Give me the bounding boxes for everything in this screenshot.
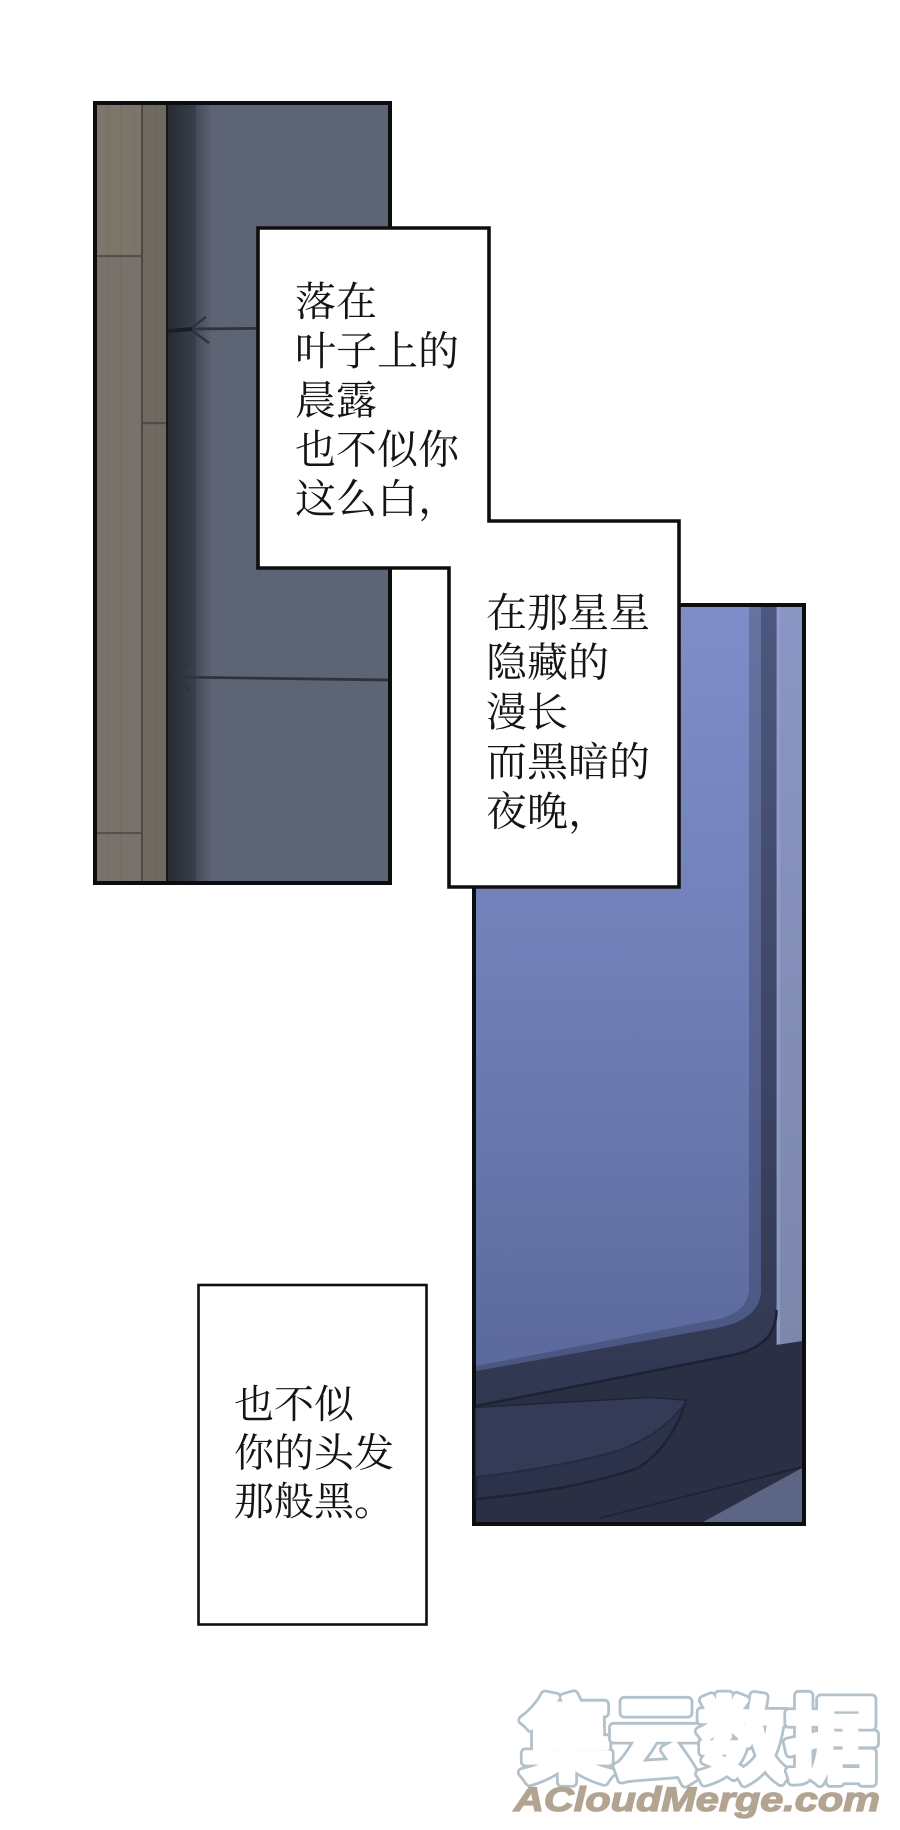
svg-text:ACloudMerge.com: ACloudMerge.com: [513, 1781, 880, 1819]
